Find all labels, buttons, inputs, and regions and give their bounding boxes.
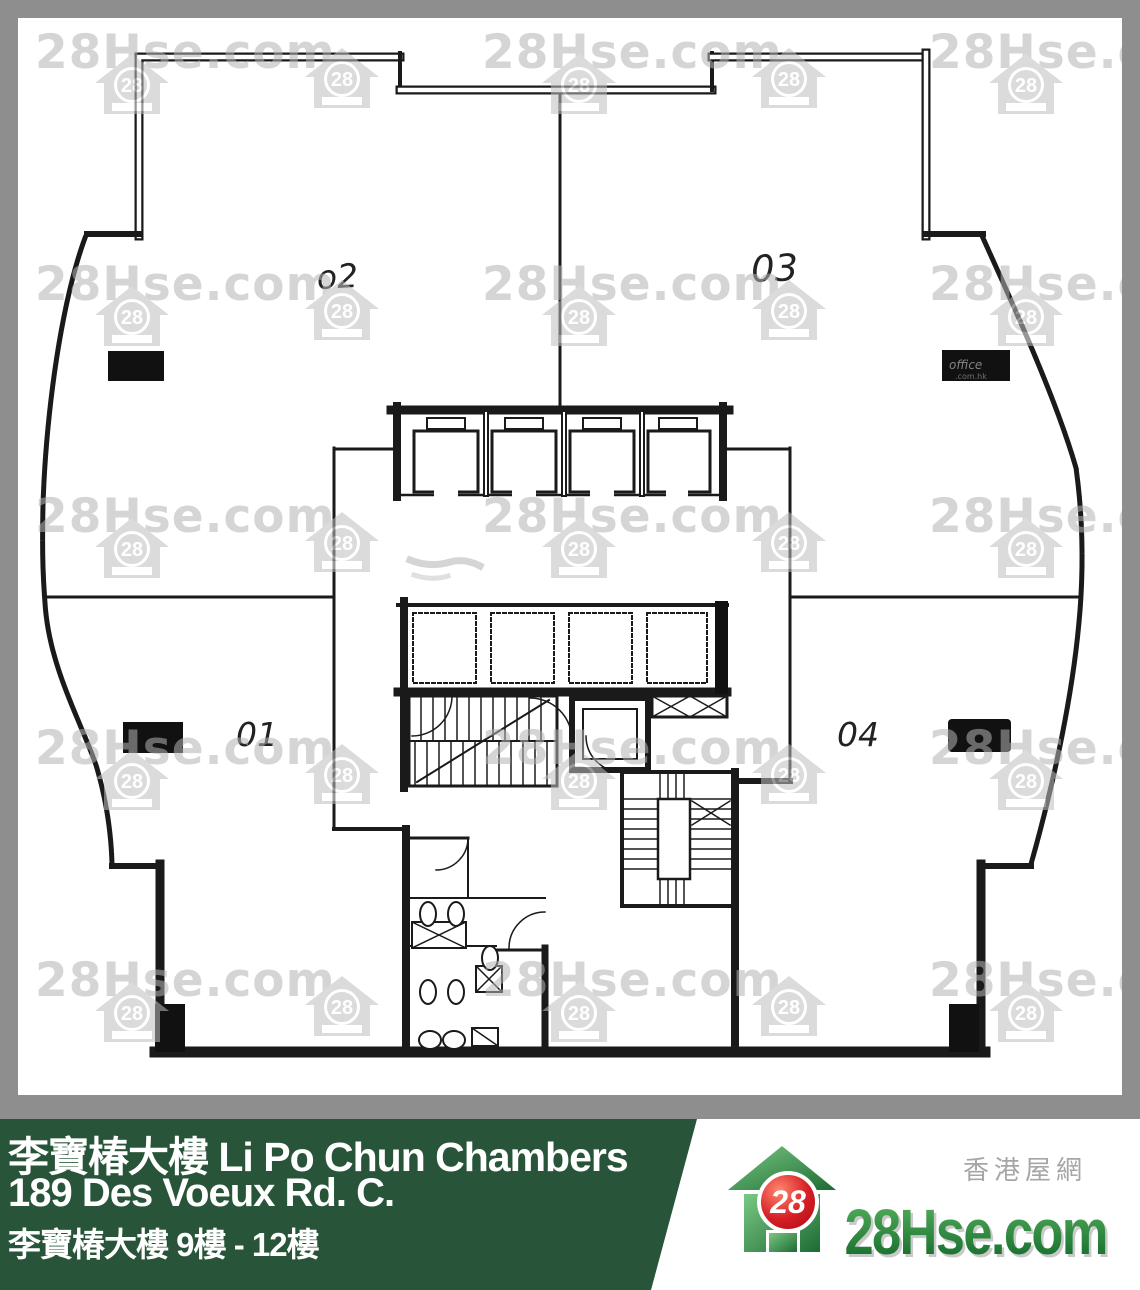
logo-wordmark: 28Hse.com bbox=[844, 1197, 1106, 1268]
28hse-logo: 28 28Hse.com bbox=[728, 1144, 1128, 1284]
building-floor-range: 李寶椿大樓 9樓 - 12樓 bbox=[8, 1218, 319, 1266]
logo-house-icon: 28 bbox=[728, 1146, 836, 1252]
floorplan-page: 28 28Hse.com bbox=[0, 0, 1140, 1290]
logo-badge-text: 28 bbox=[769, 1184, 806, 1220]
building-info-panel: 李寶椿大樓 Li Po Chun Chambers 189 Des Voeux … bbox=[0, 1119, 720, 1290]
building-address: 189 Des Voeux Rd. C. bbox=[8, 1171, 394, 1216]
watermark-layer bbox=[18, 18, 1122, 1095]
logo-brand-text: 28Hse.com bbox=[844, 1197, 1106, 1268]
floorplan-image: 28 28Hse.com bbox=[0, 0, 1140, 1095]
